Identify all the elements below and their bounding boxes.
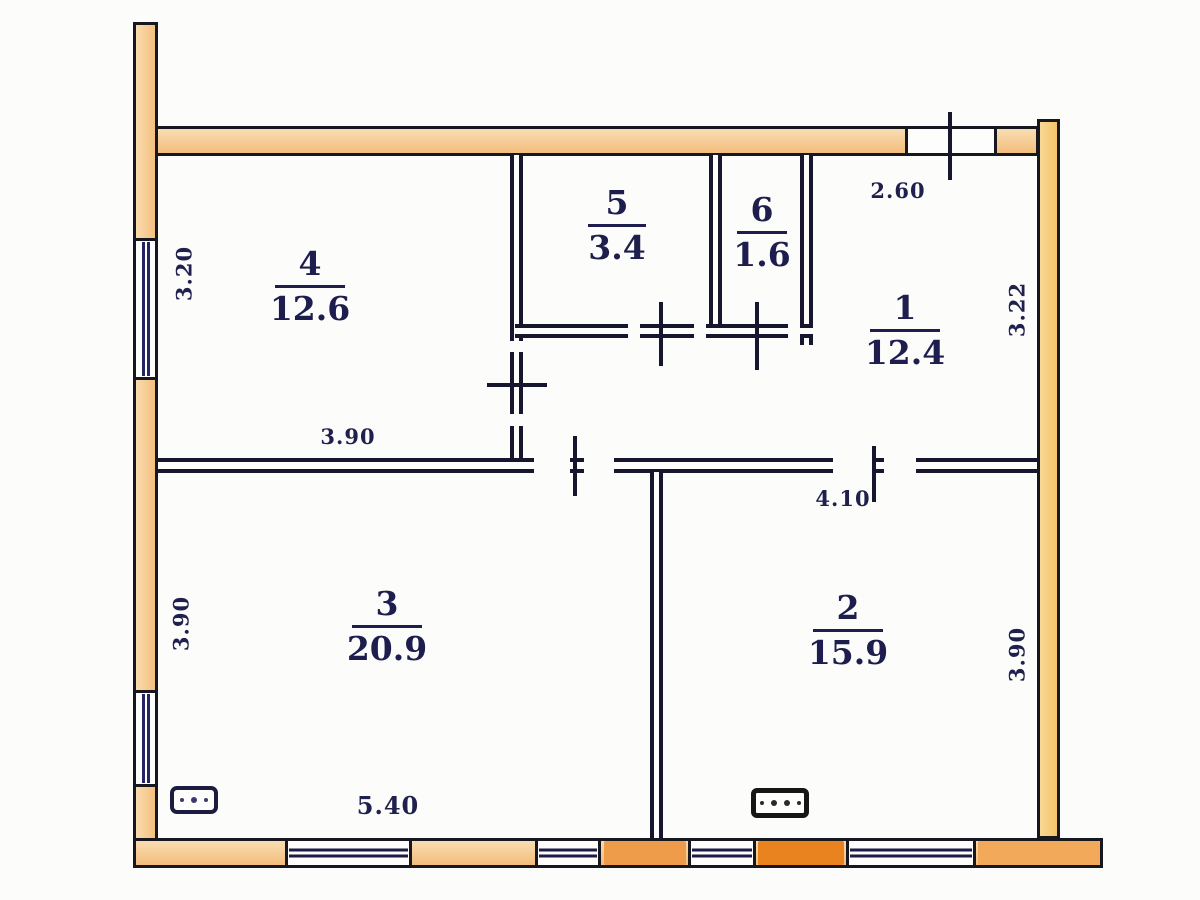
door-gap [584, 456, 614, 475]
room-label-divider [275, 285, 345, 288]
window-left-upper [133, 238, 158, 380]
room-label-2: 2 15.9 [788, 591, 908, 669]
bottom-wall-segment-right-orange [978, 841, 1100, 865]
window-bottom-2 [535, 838, 601, 868]
dimension-tick [487, 383, 547, 387]
room-label-divider [813, 629, 883, 632]
window-left-lower [133, 690, 158, 787]
outer-wall-right [1037, 119, 1060, 839]
room-label-divider [588, 224, 646, 227]
room-area: 20.9 [327, 632, 447, 665]
room-label-1: 1 12.4 [845, 291, 965, 369]
room-number: 5 [557, 186, 677, 219]
dimension-label-right-upper: 3.22 [1005, 275, 1030, 345]
door-gap [534, 456, 570, 475]
outlet-dot [797, 801, 801, 805]
outlet-dot [180, 798, 184, 802]
outlet-room3 [170, 786, 218, 814]
room-area: 1.6 [707, 238, 817, 271]
door-gap [694, 322, 706, 340]
outlet-dot [191, 797, 197, 803]
window-glass [142, 694, 150, 783]
room-number: 4 [250, 247, 370, 280]
dimension-tick [659, 302, 663, 366]
window-glass [289, 849, 408, 858]
dimension-tick [948, 112, 952, 180]
dimension-label-left-lower: 3.90 [169, 589, 194, 659]
door-gap [628, 322, 640, 340]
room-number: 1 [845, 291, 965, 324]
window-bottom-1 [285, 838, 412, 868]
dimension-tick [573, 436, 577, 496]
room-area: 12.6 [250, 292, 370, 325]
room-area: 3.4 [557, 231, 677, 264]
room-label-divider [870, 329, 940, 332]
outlet-room2 [751, 788, 809, 818]
window-bottom-4 [846, 838, 976, 868]
room-label-6: 6 1.6 [707, 193, 817, 271]
bottom-wall-segment-bright-orange [758, 841, 844, 865]
room-number: 2 [788, 591, 908, 624]
window-glass [850, 849, 972, 858]
window-bottom-3 [688, 838, 756, 868]
room-number: 6 [707, 193, 817, 226]
dimension-label-inner-right: 4.10 [805, 486, 881, 511]
door-gap [884, 456, 916, 475]
outlet-dot [760, 801, 764, 805]
wall-joint-gap [509, 341, 524, 352]
room-label-divider [352, 625, 422, 628]
room-label-4: 4 12.6 [250, 247, 370, 325]
window-glass [142, 242, 150, 376]
floor-plan: 4 12.6 5 3.4 6 1.6 1 12.4 3 20.9 2 15.9 … [0, 0, 1200, 900]
room-area: 15.9 [788, 636, 908, 669]
wall-room3-room2-divider [650, 472, 663, 838]
window-glass [539, 849, 597, 858]
dimension-label-right-lower: 3.90 [1005, 620, 1030, 690]
door-gap [833, 456, 872, 475]
dimension-label-left-upper: 3.20 [172, 239, 197, 309]
window-glass [692, 849, 752, 858]
wall-joint-gap [509, 414, 524, 426]
dimension-label-bottom: 5.40 [350, 791, 426, 820]
room-label-3: 3 20.9 [327, 587, 447, 665]
outlet-dot [784, 800, 790, 806]
room-number: 3 [327, 587, 447, 620]
dimension-tick [755, 302, 759, 370]
wall-room5-room6-bottom [515, 324, 813, 338]
room-label-divider [737, 231, 788, 234]
room-area: 12.4 [845, 336, 965, 369]
bottom-wall-segment-mid-orange [604, 841, 686, 865]
wall-room4-room5-divider [510, 155, 523, 458]
door-gap [788, 322, 800, 340]
room-label-5: 5 3.4 [557, 186, 677, 264]
dimension-label-inner-left: 3.90 [310, 424, 386, 449]
outlet-dot [771, 800, 777, 806]
outlet-dot [204, 798, 208, 802]
dimension-label-top-right: 2.60 [860, 178, 936, 203]
